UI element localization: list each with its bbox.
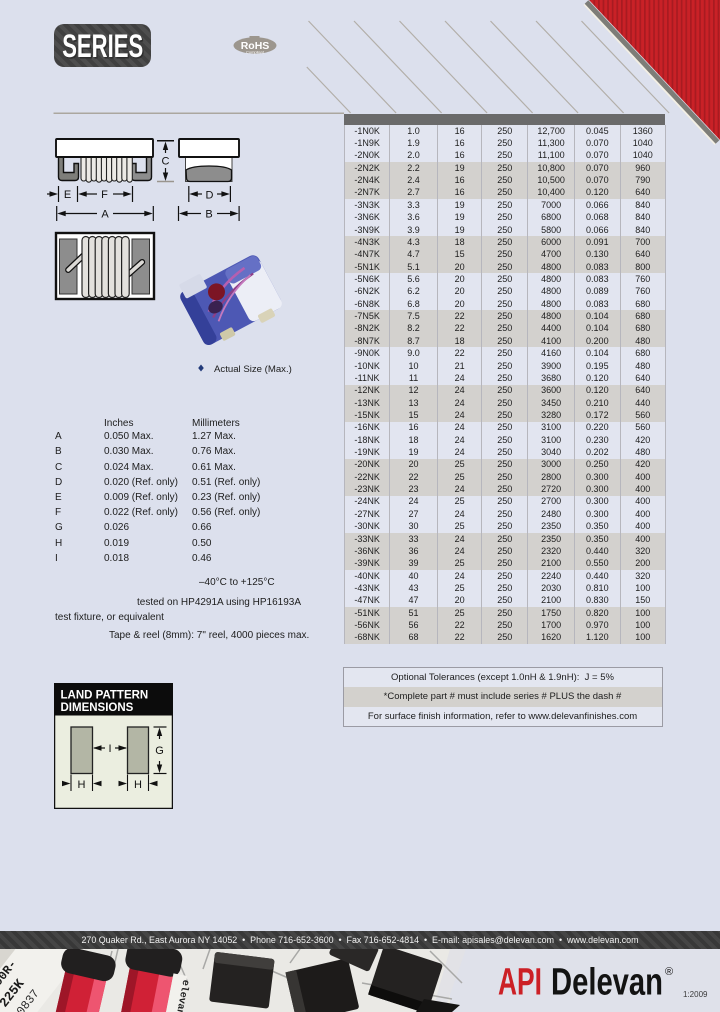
svg-text:H: H — [134, 779, 142, 791]
svg-text:E: E — [64, 189, 71, 201]
svg-text:Actual Size (Max.): Actual Size (Max.) — [214, 364, 292, 375]
svg-text:G: G — [155, 745, 164, 757]
svg-text:®: ® — [665, 966, 673, 978]
svg-text:H: H — [78, 779, 86, 791]
svg-text:SERIES: SERIES — [62, 28, 143, 64]
svg-text:I: I — [108, 743, 111, 755]
svg-text:Compliant: Compliant — [246, 50, 265, 55]
svg-text:Delevan: Delevan — [551, 962, 663, 1004]
svg-text:B: B — [205, 209, 212, 221]
svg-text:A: A — [101, 209, 109, 221]
svg-text:API: API — [498, 962, 542, 1004]
svg-text:DIMENSIONS: DIMENSIONS — [61, 702, 134, 714]
svg-text:D: D — [206, 190, 214, 202]
svg-text:C: C — [162, 156, 170, 168]
svg-text:F: F — [101, 189, 108, 201]
svg-text:LAND PATTERN: LAND PATTERN — [61, 690, 149, 702]
